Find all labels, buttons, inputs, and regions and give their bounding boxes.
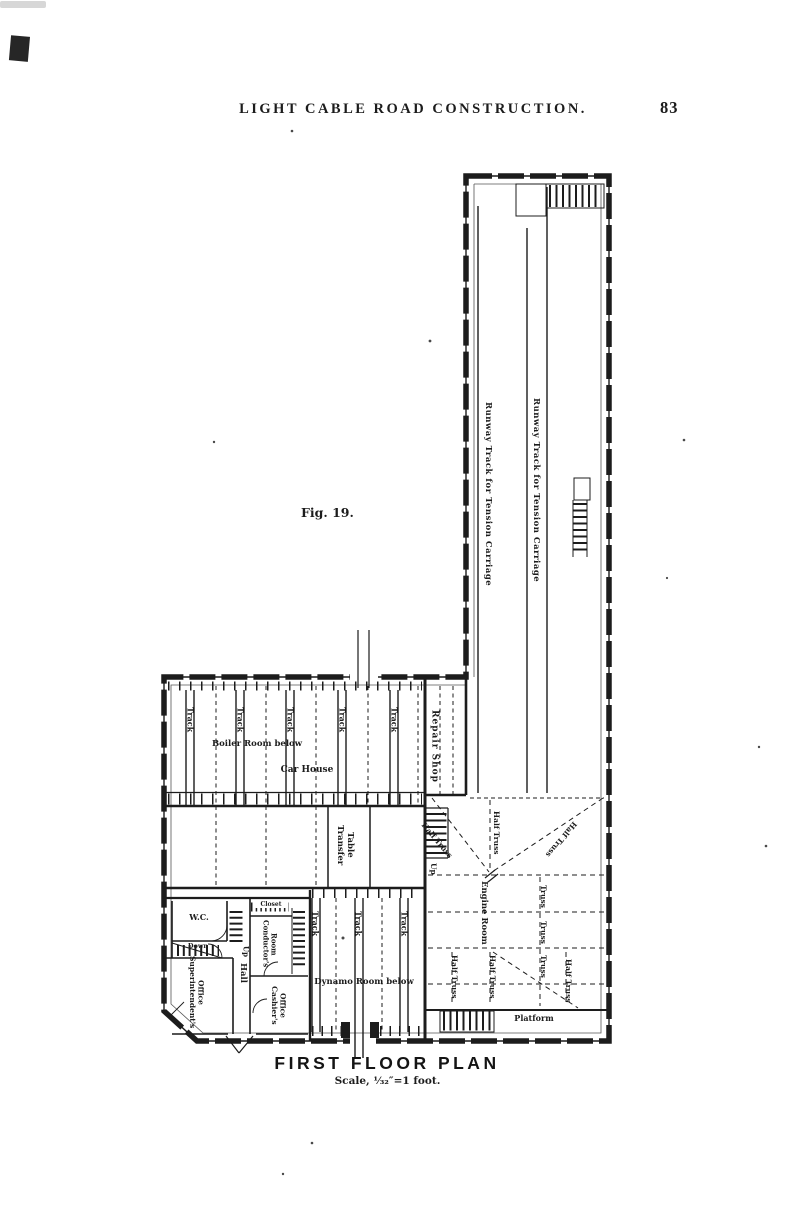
car-house-label: Car House: [262, 765, 352, 776]
page-number: 83: [660, 98, 679, 117]
closet-label: Closet: [254, 901, 288, 908]
superintendent-office-label: Superintendent's Office: [187, 952, 205, 1032]
truss-label-1: Truss: [538, 882, 547, 910]
platform-label: Platform: [498, 1014, 570, 1023]
conductor-room-label: Conductor's Room: [261, 917, 278, 971]
north-track-exit: [350, 630, 378, 688]
dynamo-room-label: Dynamo Room below: [303, 977, 425, 987]
scanned-book-page: LIGHT CABLE ROAD CONSTRUCTION. 83 Fig. 1…: [0, 0, 803, 1220]
transfer-table-label: Transfer Table: [335, 823, 355, 867]
bumper-blocks: [341, 1022, 379, 1038]
up-label-engine-stair: Up: [428, 861, 437, 877]
truss-label-2: Truss: [538, 918, 547, 946]
track-label-6: Track: [310, 900, 319, 948]
scan-artifacts: [0, 1, 767, 1175]
runway-track-label-right: Runway Track for Tension Carriage: [531, 388, 541, 593]
hall-label: Hall: [238, 957, 248, 989]
engine-room-label: Engine Room: [479, 871, 489, 955]
cashier-office-label: Cashier's Office: [269, 981, 287, 1029]
boiler-room-label: Boiler Room below: [197, 739, 317, 749]
track-label-5: Track: [389, 695, 398, 745]
caption-scale: Scale, ¹⁄₃₂″=1 foot.: [300, 1075, 475, 1087]
track-label-7: Track: [353, 900, 362, 948]
track-label-4: Track: [337, 695, 346, 745]
figure-label: Fig. 19.: [301, 506, 354, 521]
half-truss-label-bottom-left: Half Truss: [449, 951, 458, 1003]
track-label-3: Track: [285, 695, 294, 745]
half-truss-label-bottom-center: Half Truss: [487, 951, 496, 1003]
caption-title: FIRST FLOOR PLAN: [272, 1053, 502, 1074]
track-label-8: Track: [399, 900, 408, 948]
truss-label-3: Truss: [538, 952, 547, 980]
runway-track-label-left: Runway Track for Tension Carriage: [483, 392, 493, 597]
half-truss-label-top: Half Truss: [491, 806, 500, 860]
track-label-2: Track: [235, 695, 244, 745]
up-label-hall-stair: Up: [241, 944, 249, 958]
down-label: Down: [177, 943, 219, 951]
half-truss-label-bottom-right: Half Truss: [563, 955, 572, 1007]
wc-label: W.C.: [178, 913, 220, 922]
track-label-1: Track: [185, 695, 194, 745]
floorplan-linework: [0, 0, 803, 1220]
repair-shop-label: Repair Shop: [429, 700, 440, 792]
page-header-title: LIGHT CABLE ROAD CONSTRUCTION.: [233, 101, 593, 118]
